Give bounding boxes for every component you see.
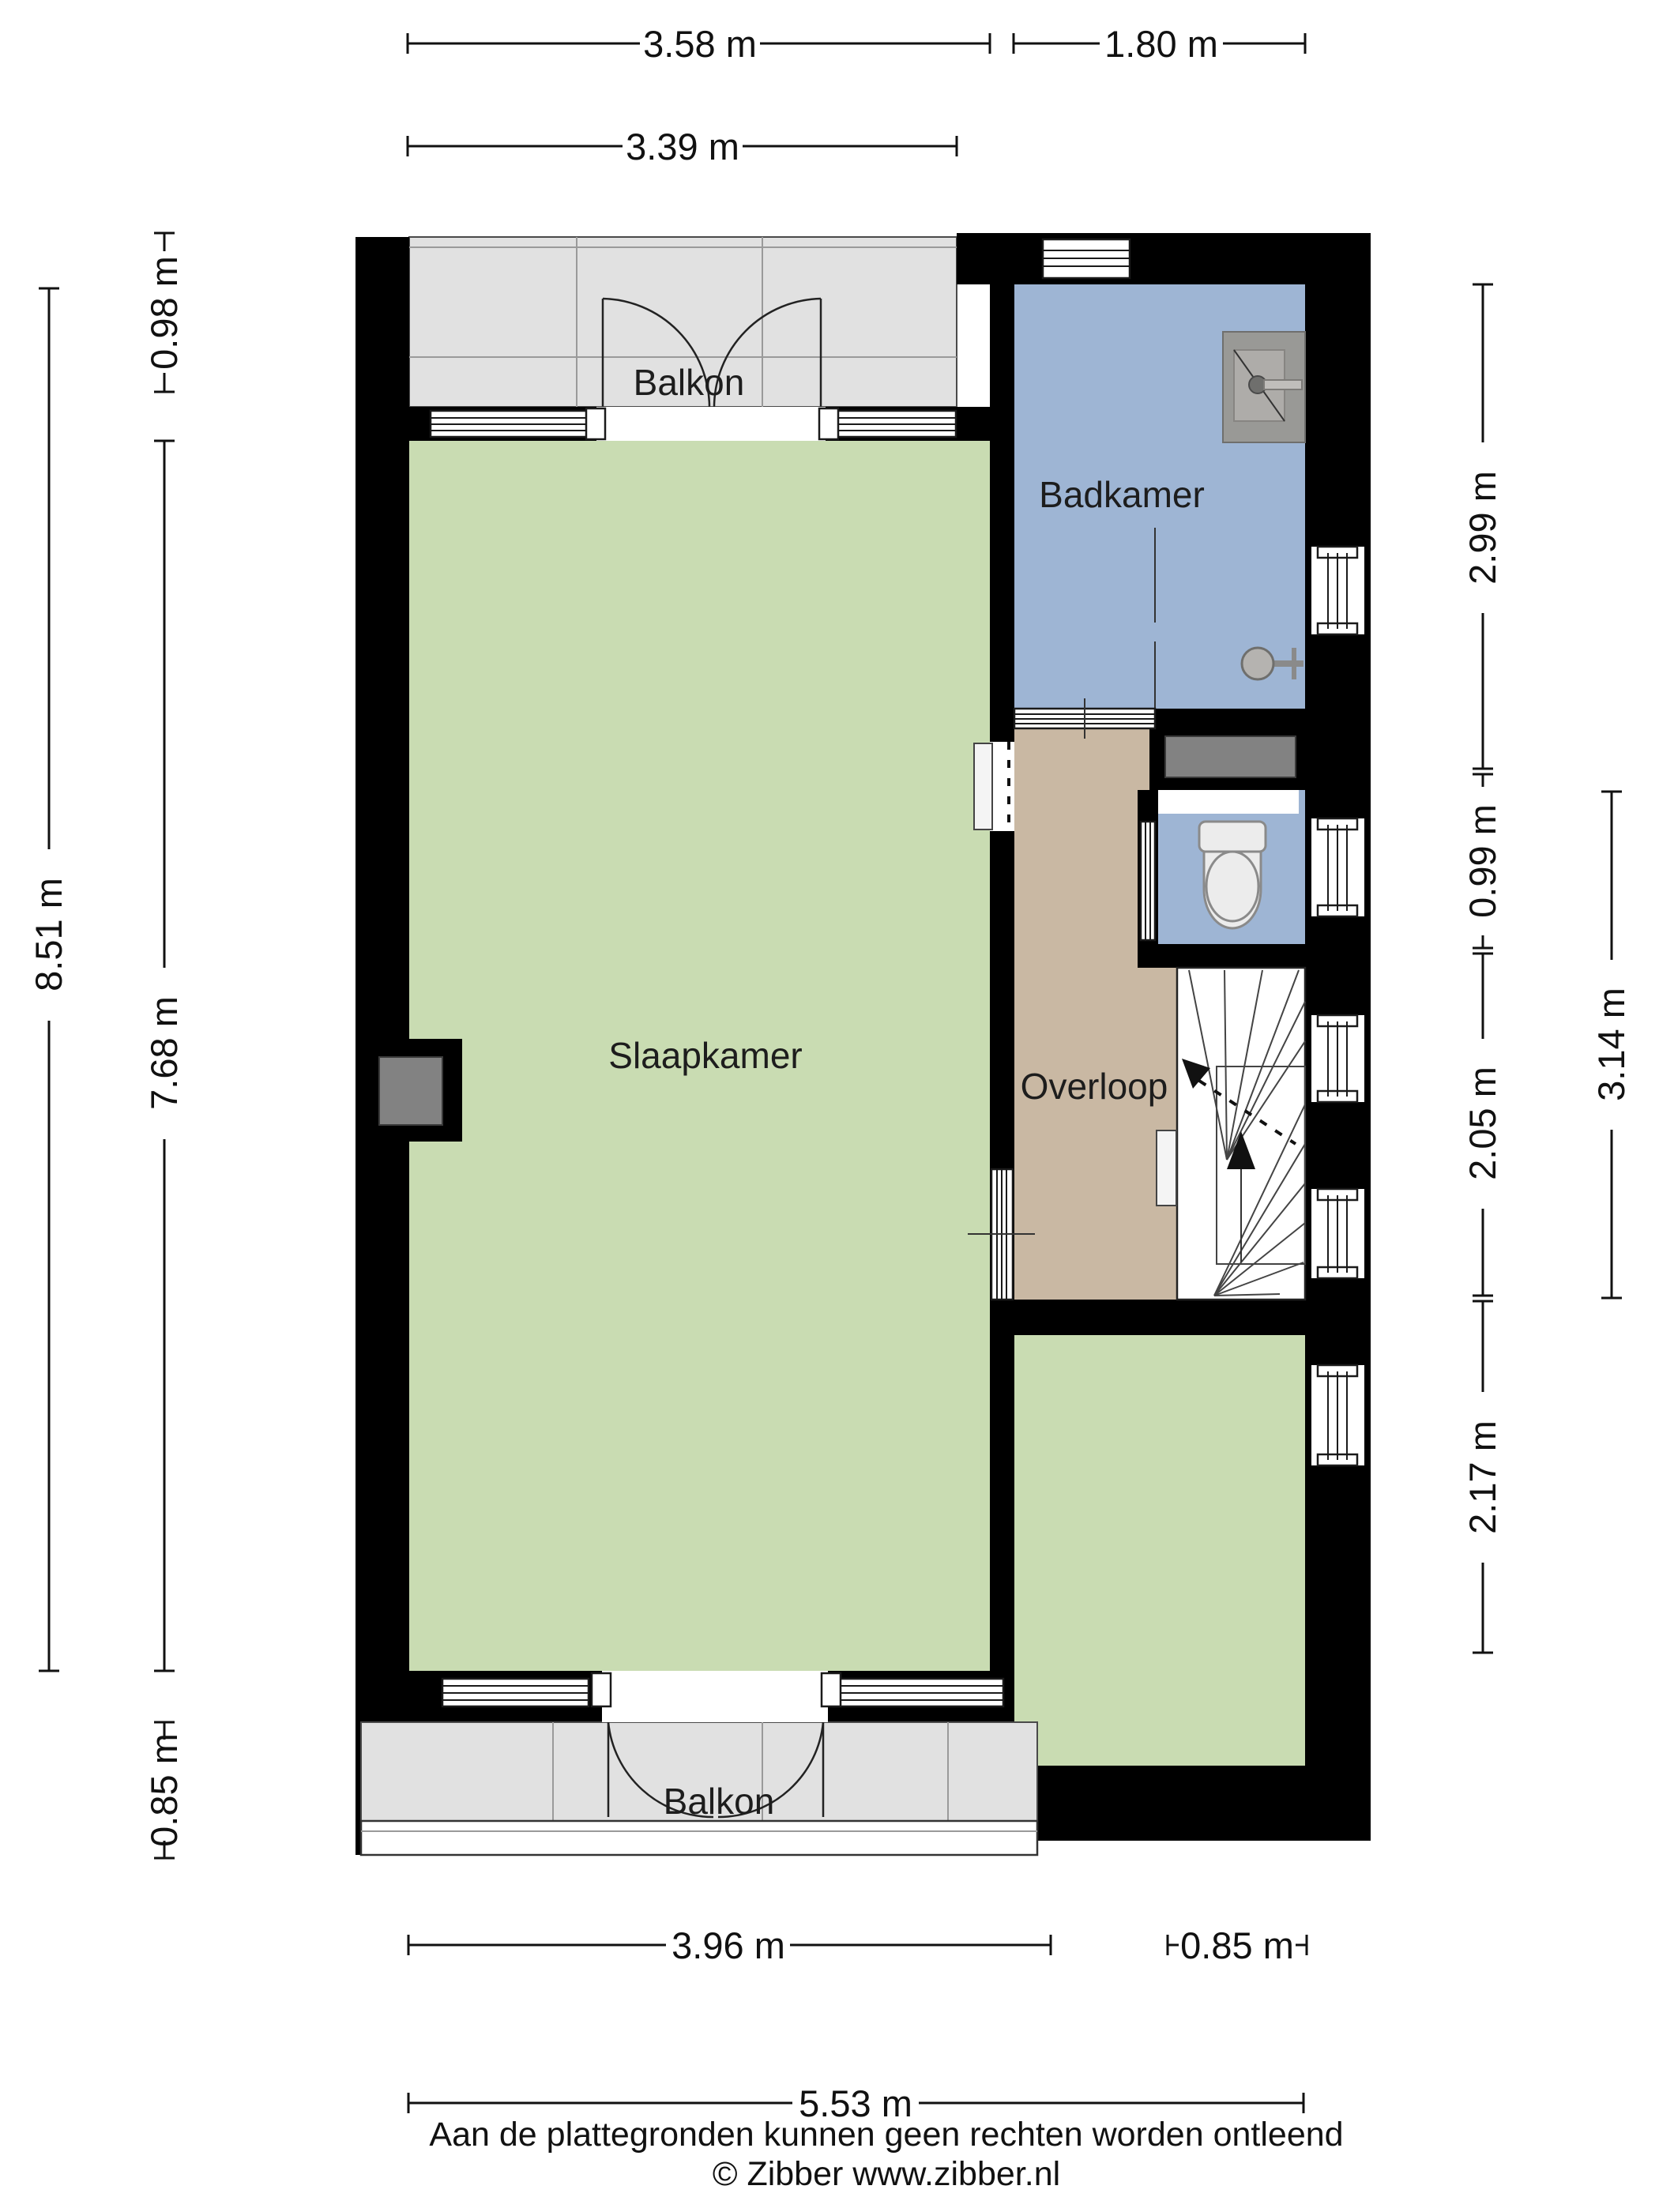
dimension-left-085: 0.85 m bbox=[143, 1722, 185, 1858]
balcony-bottom-label: Balkon bbox=[664, 1781, 775, 1822]
dimension-bottom-085: 0.85 m bbox=[1168, 1924, 1307, 1966]
window-stairs-upper bbox=[1311, 1015, 1364, 1102]
svg-text:0.85 m: 0.85 m bbox=[1180, 1924, 1294, 1966]
toilet-door-opening bbox=[1158, 790, 1299, 814]
window-toilet bbox=[1311, 818, 1364, 916]
toilet-window-strip bbox=[1141, 822, 1155, 940]
svg-text:2.05 m: 2.05 m bbox=[1461, 1066, 1503, 1180]
bedroom-label: Slaapkamer bbox=[608, 1035, 802, 1076]
bathroom-sink bbox=[1223, 332, 1305, 442]
dimension-top-180: 1.80 m bbox=[1014, 23, 1305, 65]
landing-label: Overloop bbox=[1021, 1066, 1168, 1107]
svg-text:3.58 m: 3.58 m bbox=[643, 23, 757, 65]
dimension-top-339: 3.39 m bbox=[408, 126, 957, 167]
svg-text:2.17 m: 2.17 m bbox=[1461, 1420, 1503, 1534]
stairs-door-leaf bbox=[1157, 1130, 1176, 1206]
dimension-left-768: 7.68 m bbox=[143, 441, 185, 1671]
svg-text:3.14 m: 3.14 m bbox=[1590, 987, 1632, 1101]
wall-shaft bbox=[359, 1039, 462, 1142]
svg-text:0.98 m: 0.98 m bbox=[143, 256, 185, 370]
dimension-right-099: 0.99 m bbox=[1461, 774, 1503, 948]
svg-text:7.68 m: 7.68 m bbox=[143, 996, 185, 1110]
dimension-bottom-396: 3.96 m bbox=[408, 1924, 1051, 1966]
bedroom-floor-extension bbox=[1014, 1335, 1305, 1766]
svg-text:0.85 m: 0.85 m bbox=[143, 1733, 185, 1847]
dimension-right-205: 2.05 m bbox=[1461, 954, 1503, 1296]
window-bedroom-right bbox=[1311, 1365, 1364, 1465]
floorplan-page: Balkon Badkamer Slaapkamer Overloop Balk… bbox=[0, 0, 1659, 2212]
dimension-left-851: 8.51 m bbox=[28, 288, 70, 1671]
dimension-right-217: 2.17 m bbox=[1461, 1301, 1503, 1653]
dimension-left-098: 0.98 m bbox=[143, 233, 185, 392]
floorplan-drawing: Balkon Badkamer Slaapkamer Overloop Balk… bbox=[0, 0, 1659, 2212]
svg-text:2.99 m: 2.99 m bbox=[1461, 471, 1503, 585]
toilet-fixture bbox=[1199, 822, 1266, 928]
svg-text:3.96 m: 3.96 m bbox=[671, 1924, 785, 1966]
dimension-top-358: 3.58 m bbox=[408, 23, 990, 65]
shower-valve-icon bbox=[1242, 648, 1273, 679]
svg-text:1.80 m: 1.80 m bbox=[1104, 23, 1218, 65]
dimension-right-314: 3.14 m bbox=[1590, 792, 1632, 1298]
staircase bbox=[1177, 968, 1305, 1300]
svg-text:3.39 m: 3.39 m bbox=[626, 126, 739, 167]
dimension-right-299: 2.99 m bbox=[1461, 284, 1503, 769]
window-bathroom bbox=[1311, 547, 1364, 634]
bathroom-label: Badkamer bbox=[1039, 474, 1205, 515]
svg-text:0.99 m: 0.99 m bbox=[1461, 804, 1503, 918]
svg-text:8.51 m: 8.51 m bbox=[28, 878, 70, 991]
window-stairs-lower bbox=[1311, 1189, 1364, 1278]
bathroom-top-window bbox=[1043, 239, 1130, 278]
toilet-niche bbox=[1165, 736, 1296, 777]
footer-copyright: © Zibber www.zibber.nl bbox=[713, 2155, 1060, 2193]
balcony-top-label: Balkon bbox=[634, 362, 745, 403]
footer-disclaimer: Aan de plattegronden kunnen geen rechten… bbox=[429, 2116, 1343, 2154]
bedroom-landing-opening bbox=[974, 742, 1014, 831]
